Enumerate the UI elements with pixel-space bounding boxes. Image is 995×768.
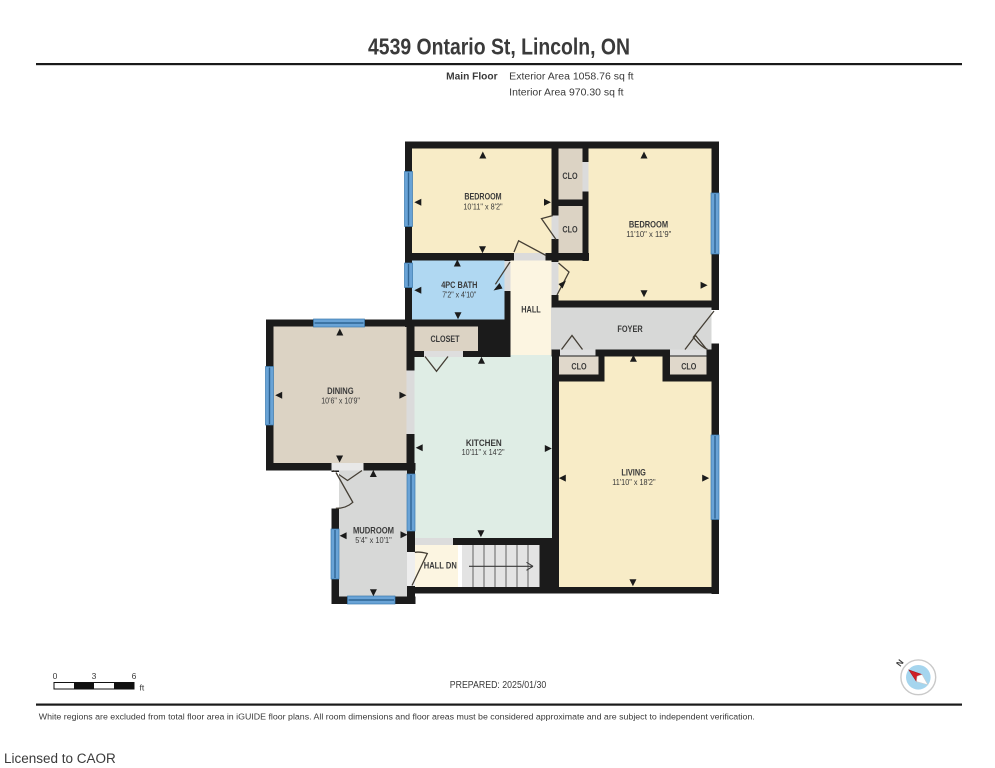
svg-text:HALL: HALL <box>521 304 541 314</box>
svg-text:10'6" x 10'9": 10'6" x 10'9" <box>321 395 360 405</box>
svg-text:CLO: CLO <box>681 362 696 372</box>
svg-text:CLOSET: CLOSET <box>430 334 460 344</box>
svg-text:White regions are excluded fro: White regions are excluded from total fl… <box>39 712 755 722</box>
svg-text:CLO: CLO <box>562 171 577 181</box>
svg-text:BEDROOM: BEDROOM <box>464 191 501 201</box>
svg-text:11'10" x 11'9": 11'10" x 11'9" <box>626 229 671 239</box>
svg-text:0: 0 <box>53 671 58 681</box>
svg-text:BEDROOM: BEDROOM <box>629 220 668 230</box>
svg-text:LIVING: LIVING <box>621 468 646 478</box>
svg-text:HALL DN: HALL DN <box>424 561 457 571</box>
svg-text:Licensed to CAOR: Licensed to CAOR <box>4 751 116 766</box>
svg-text:10'11" x 8'2": 10'11" x 8'2" <box>463 202 502 212</box>
svg-text:6: 6 <box>132 671 137 681</box>
svg-text:3: 3 <box>92 671 97 681</box>
svg-text:4539 Ontario St, Lincoln, ON: 4539 Ontario St, Lincoln, ON <box>368 34 630 60</box>
svg-text:5'4" x 10'1": 5'4" x 10'1" <box>355 535 392 545</box>
svg-text:7'2" x 4'10": 7'2" x 4'10" <box>442 290 476 300</box>
svg-text:Exterior Area 1058.76 sq ft: Exterior Area 1058.76 sq ft <box>509 72 634 83</box>
svg-text:11'10" x 18'2": 11'10" x 18'2" <box>612 477 655 487</box>
svg-text:10'11" x 14'2": 10'11" x 14'2" <box>462 447 505 457</box>
svg-text:Interior Area 970.30 sq ft: Interior Area 970.30 sq ft <box>509 87 624 98</box>
svg-text:CLO: CLO <box>562 224 577 234</box>
svg-text:FOYER: FOYER <box>617 324 643 334</box>
svg-text:ft: ft <box>140 683 145 693</box>
svg-text:Main Floor: Main Floor <box>446 72 498 83</box>
svg-text:PREPARED: 2025/01/30: PREPARED: 2025/01/30 <box>450 680 547 691</box>
svg-text:CLO: CLO <box>571 362 586 372</box>
svg-text:4PC BATH: 4PC BATH <box>441 280 477 290</box>
